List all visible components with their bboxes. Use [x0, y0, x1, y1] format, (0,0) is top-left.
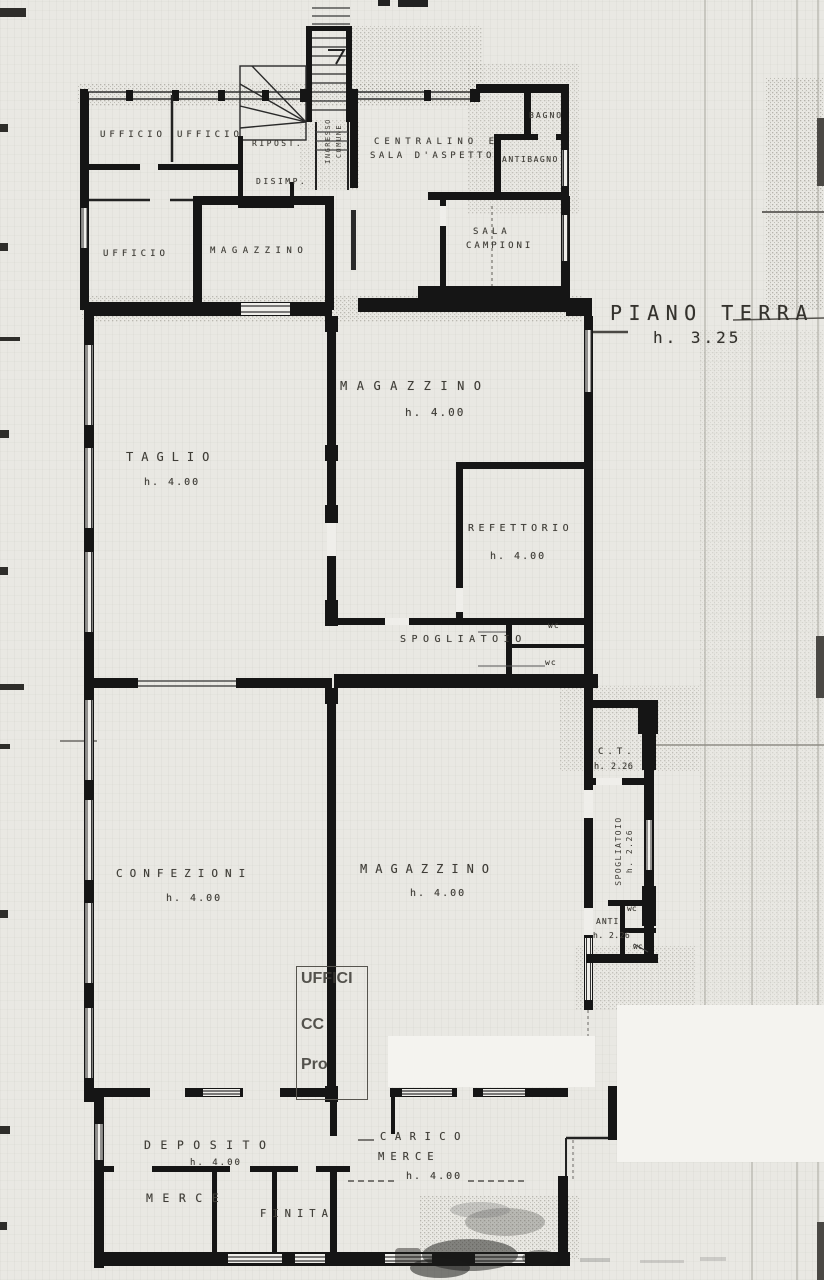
- room-label-ct: C.T.: [598, 747, 636, 757]
- stamp-line-1: UFFICI: [301, 970, 353, 988]
- room-label-carico-2: MERCE: [378, 1151, 440, 1163]
- room-height-anti: h. 2.26: [593, 931, 630, 940]
- room-height-taglio: h. 4.00: [144, 477, 200, 488]
- room-label-ufficio-a: UFFICIO: [100, 130, 166, 140]
- room-height-refettorio: h. 4.00: [490, 551, 546, 562]
- room-label-deposito: DEPOSITO: [144, 1138, 275, 1152]
- stamp-line-3: Pro: [301, 1056, 328, 1074]
- room-label-wc-4: wc: [633, 942, 643, 951]
- spogliatoio-2-height: h. 2.26: [624, 795, 635, 907]
- room-height-deposito: h. 4.00: [190, 1158, 242, 1168]
- room-label-refettorio: REFETTORIO: [468, 523, 573, 534]
- stair-direction-arrow: [328, 50, 344, 64]
- room-label-carico-1: CARICO: [380, 1131, 469, 1143]
- plan-title-height: h. 3.25: [653, 328, 741, 347]
- room-label-taglio: TAGLIO: [126, 450, 217, 464]
- room-label-confezioni: CONFEZIONI: [116, 867, 252, 880]
- room-label-magazzino-uffici: MAGAZZINO: [210, 246, 308, 256]
- room-label-wc-3: wc: [627, 904, 637, 913]
- ingresso-line-2: COMUNE: [334, 95, 345, 187]
- room-label-sala-campioni-2: CAMPIONI: [466, 241, 533, 251]
- room-label-magazzino-1: MAGAZZINO: [340, 379, 491, 393]
- room-label-ingresso-comune: INGRESSO COMUNE: [323, 95, 345, 187]
- room-label-ufficio-b: UFFICIO: [177, 130, 243, 140]
- room-label-antibagno: ANTIBAGNO: [502, 155, 559, 164]
- floor-plan-sheet: UFFICIO UFFICIO RIPOST. INGRESSO COMUNE …: [0, 0, 824, 1280]
- room-label-merce: MERCE: [146, 1191, 228, 1205]
- room-label-centralino-2: SALA D'ASPETTO: [370, 151, 495, 161]
- room-label-disimpegno: DISIMP.: [256, 177, 307, 186]
- room-height-confezioni: h. 4.00: [166, 893, 222, 904]
- room-label-centralino-1: CENTRALINO E: [374, 137, 499, 147]
- room-label-sala-campioni-1: SALA: [473, 227, 511, 237]
- room-label-finita: FINITA: [260, 1208, 334, 1220]
- room-height-ct: h. 2.26: [594, 762, 633, 772]
- room-label-bagno: BAGNO: [529, 111, 563, 120]
- room-label-spogliatoio-2: SPOGLIATOIO h. 2.26: [613, 795, 635, 907]
- room-height-magazzino-1: h. 4.00: [405, 406, 465, 419]
- spogliatoio-2-name: SPOGLIATOIO: [613, 795, 624, 907]
- ingresso-line-1: INGRESSO: [323, 95, 334, 187]
- room-label-magazzino-2: MAGAZZINO: [360, 862, 497, 876]
- room-label-anti: ANTI: [596, 917, 619, 926]
- plan-title: PIANO TERRA: [610, 301, 814, 325]
- room-height-carico: h. 4.00: [406, 1171, 462, 1182]
- room-label-ufficio-c: UFFICIO: [103, 249, 169, 259]
- room-height-magazzino-2: h. 4.00: [410, 888, 466, 899]
- room-label-wc-1: wc: [548, 621, 560, 630]
- room-label-wc-2: wc: [545, 658, 557, 667]
- room-label-spogliatoio-1: SPOGLIATOIO: [400, 634, 527, 645]
- stamp-line-2: CC: [301, 1016, 324, 1034]
- room-label-ripostiglio: RIPOST.: [252, 139, 303, 148]
